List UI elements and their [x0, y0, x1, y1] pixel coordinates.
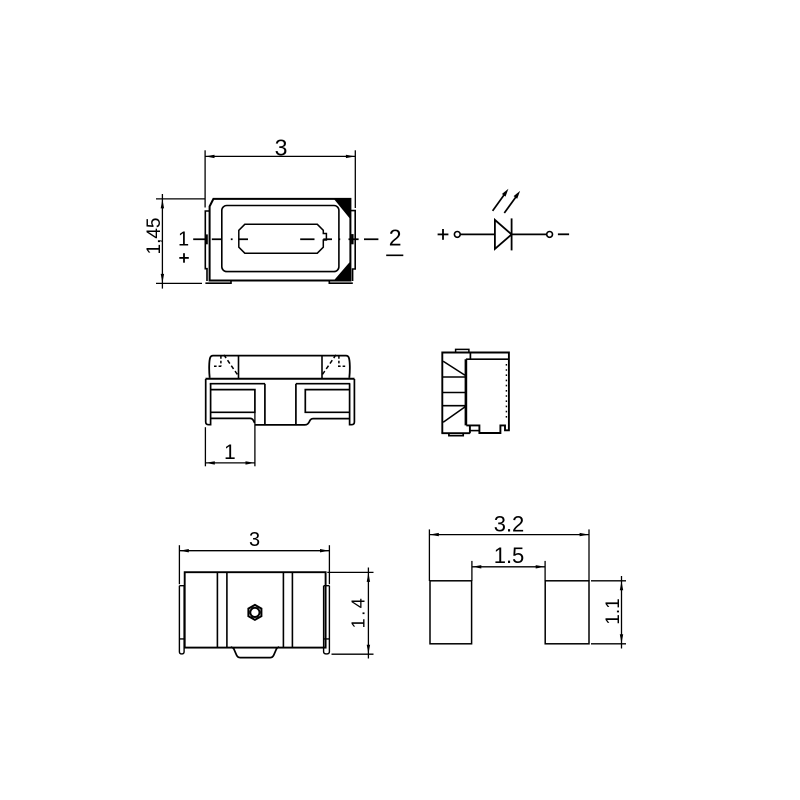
svg-text:3: 3: [249, 529, 260, 551]
svg-text:1.5: 1.5: [494, 543, 525, 568]
svg-text:2: 2: [389, 225, 402, 251]
svg-text:3.2: 3.2: [494, 511, 525, 536]
svg-text:1: 1: [178, 229, 189, 251]
svg-text:1.4: 1.4: [349, 596, 369, 629]
svg-text:1: 1: [224, 441, 236, 464]
